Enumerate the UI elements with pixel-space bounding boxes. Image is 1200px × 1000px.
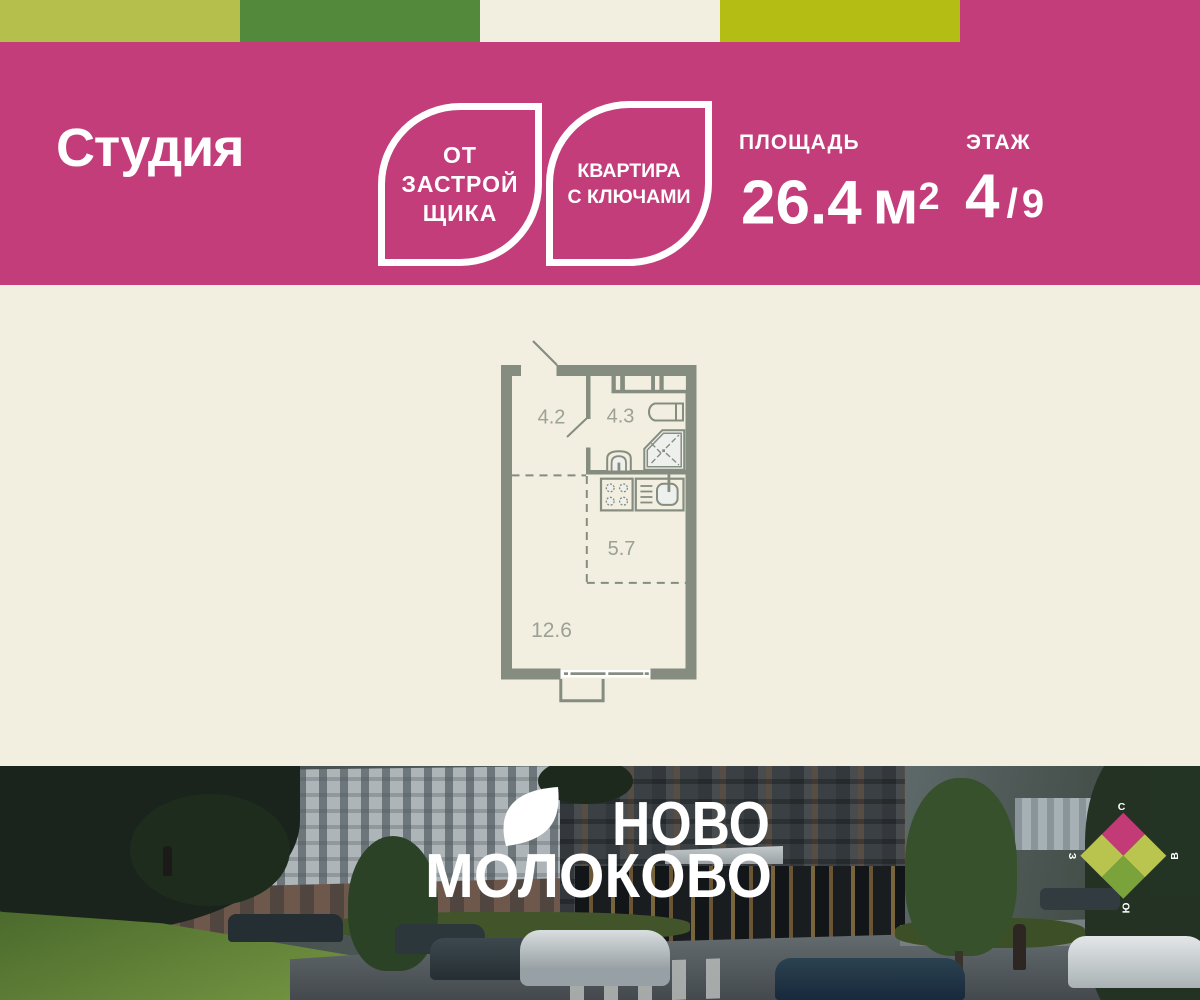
svg-text:МОЛОКОВО: МОЛОКОВО xyxy=(425,842,772,911)
svg-text:4.3: 4.3 xyxy=(607,406,635,428)
svg-text:5.7: 5.7 xyxy=(608,538,636,560)
svg-text:С: С xyxy=(1118,801,1126,813)
svg-text:З: З xyxy=(1066,853,1078,860)
svg-text:12.6: 12.6 xyxy=(531,619,572,642)
svg-text:Ю: Ю xyxy=(1120,902,1132,913)
svg-text:В: В xyxy=(1169,852,1181,860)
svg-text:4.2: 4.2 xyxy=(538,407,566,429)
